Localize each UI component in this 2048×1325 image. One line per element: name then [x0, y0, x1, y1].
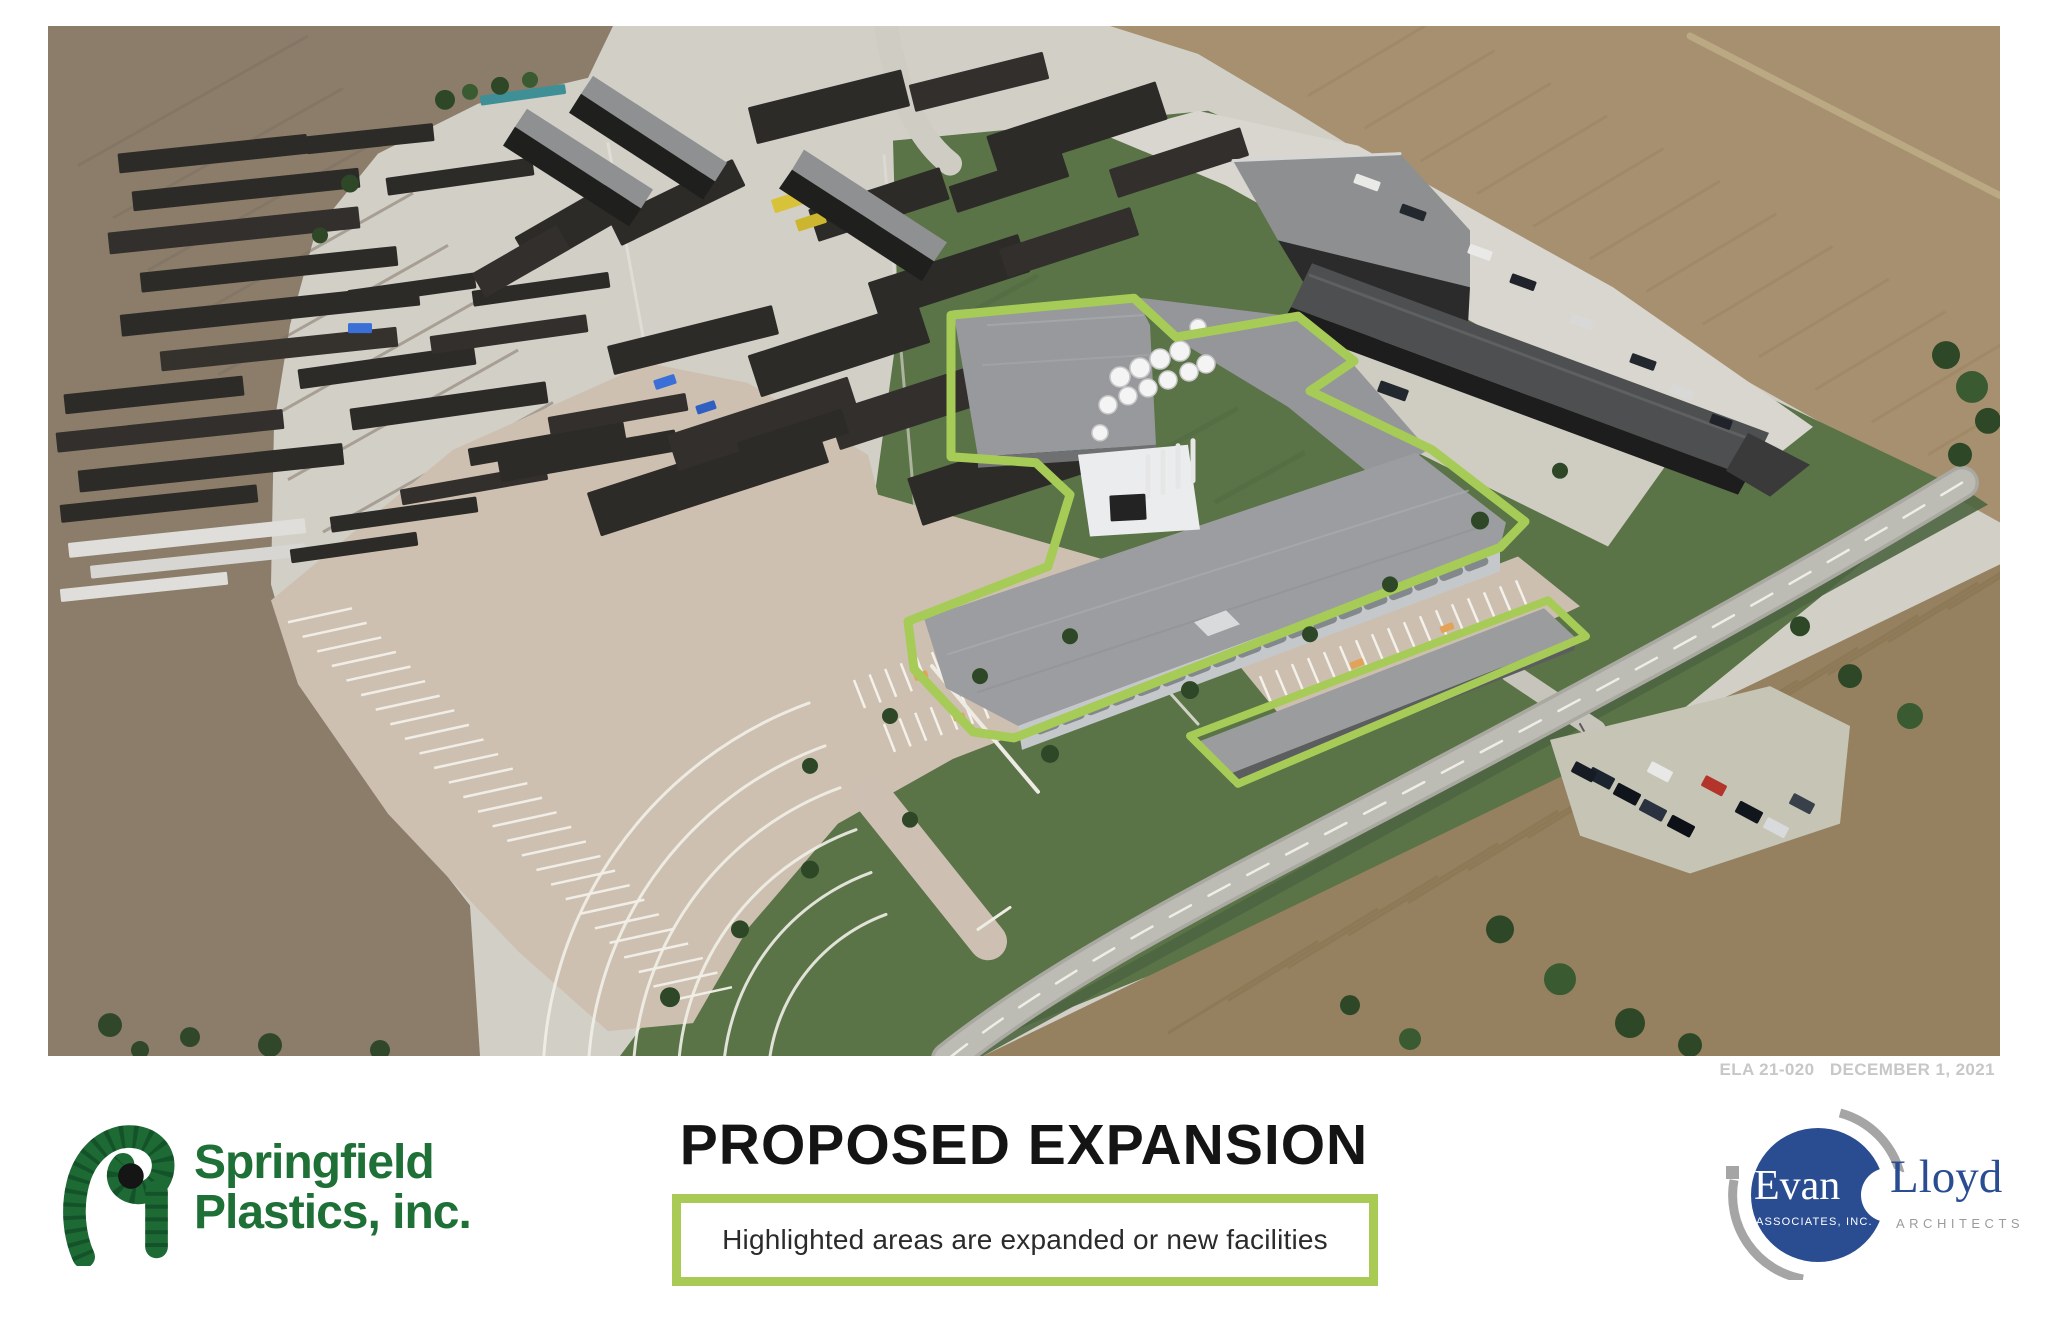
springfield-wordmark-line1: Springfield — [194, 1138, 471, 1188]
lloyd-text: Lloyd — [1890, 1150, 2002, 1204]
coil-pipe-icon — [62, 1096, 190, 1266]
evan-lloyd-logo: Evan ASSOCIATES, INC. Lloyd ARCHITECTS — [1690, 1100, 2046, 1280]
springfield-wordmark-line2: Plastics, inc. — [194, 1188, 471, 1238]
legend-box: Highlighted areas are expanded or new fa… — [672, 1194, 1378, 1286]
aerial-svg — [48, 26, 2000, 1056]
presentation-board: ELA 21-020 DECEMBER 1, 2021 PROPOSED EXP… — [0, 0, 2048, 1325]
aerial-rendering — [48, 26, 2000, 1056]
springfield-plastics-logo: Springfield Plastics, inc. — [62, 1090, 662, 1290]
architects-text: ARCHITECTS — [1896, 1216, 2024, 1231]
associates-text: ASSOCIATES, INC. — [1756, 1216, 1873, 1228]
springfield-wordmark: Springfield Plastics, inc. — [194, 1138, 471, 1238]
legend-text: Highlighted areas are expanded or new fa… — [722, 1224, 1328, 1256]
evan-text: Evan — [1754, 1162, 1840, 1210]
plan-ref: ELA 21-020 DECEMBER 1, 2021 — [1719, 1060, 1995, 1080]
